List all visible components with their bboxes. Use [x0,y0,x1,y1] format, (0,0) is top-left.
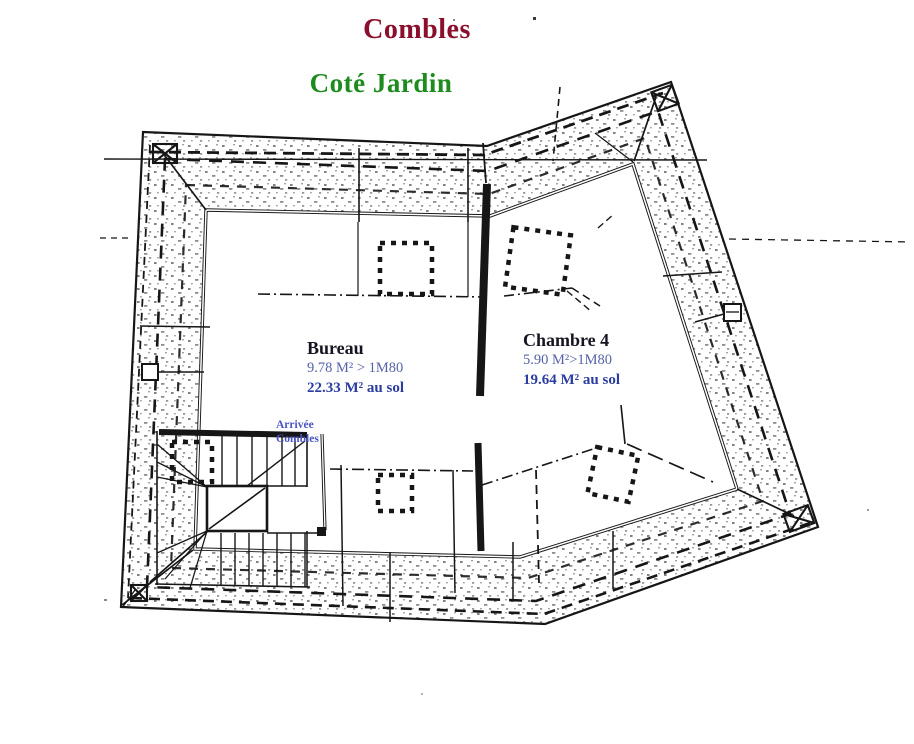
floor-plan-page: Combles Coté Jardin Bureau 9.78 M² > 1M8… [0,0,914,744]
room-area-floor: 19.64 M² au sol [523,371,620,389]
wall-band-fill [121,82,818,624]
room-area-floor: 22.33 M² au sol [307,379,404,397]
stairs-arrival-line2: Combles [276,432,319,446]
room-area-above-1m80: 5.90 M²>1M80 [523,352,620,369]
room-label-bureau: Bureau 9.78 M² > 1M80 22.33 M² au sol [307,338,404,397]
floor-plan-drawing [0,0,914,744]
chimney-square-chambre-top [505,227,571,294]
page-subtitle: Coté Jardin [310,68,453,99]
chimney-square-chambre-bottom [587,447,638,502]
chimney-square-bureau-top [380,243,432,294]
stairs-arrival-line1: Arrivée [276,418,319,432]
room-name: Chambre 4 [523,330,620,350]
room-label-chambre4: Chambre 4 5.90 M²>1M80 19.64 M² au sol [523,330,620,389]
room-area-above-1m80: 9.78 M² > 1M80 [307,360,404,377]
page-title: Combles [363,14,471,46]
stairs-arrival-label: Arrivée Combles [276,418,319,446]
room-name: Bureau [307,338,404,358]
chimney-square-bureau-bottom [378,475,412,511]
wall-band [121,82,818,624]
